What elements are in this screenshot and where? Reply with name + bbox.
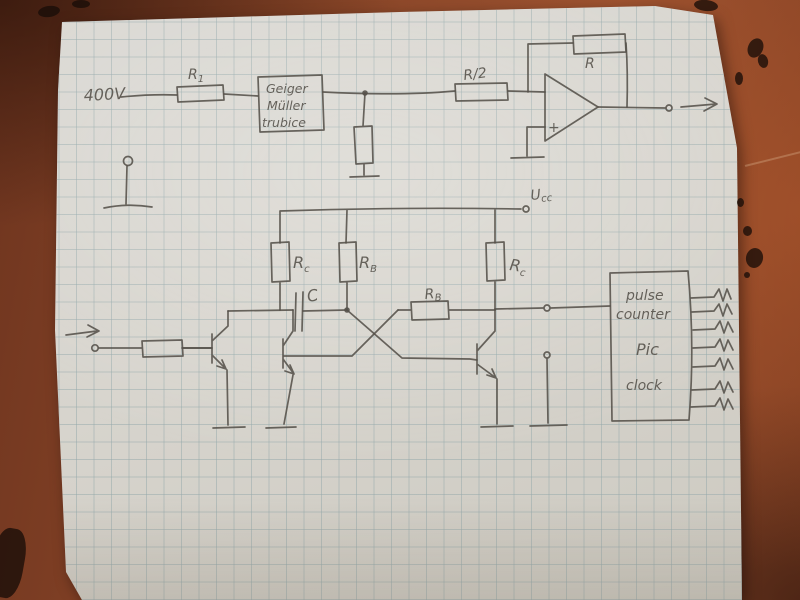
rb-mid-label: RB	[424, 286, 442, 305]
diagonal-to-left-base	[284, 310, 398, 356]
hv-wire	[121, 95, 177, 97]
wire	[303, 310, 347, 311]
resistor-r1-label: R1	[188, 67, 204, 85]
wire	[508, 91, 545, 92]
output-wire	[598, 107, 665, 108]
right-flipflop-transistor	[477, 310, 513, 427]
rc-right-label: Rc	[508, 255, 528, 279]
collector-resistor-left	[271, 242, 290, 310]
counter-pin	[693, 321, 733, 333]
counter-label-line2: counter	[616, 307, 671, 323]
vcc-rail	[280, 206, 529, 243]
transistor-body	[477, 310, 513, 427]
resistor-r1-body	[177, 85, 224, 102]
wire	[228, 310, 293, 311]
output-terminal-circle	[666, 105, 672, 111]
cross-coupling	[284, 301, 495, 360]
noninverting-ground	[511, 127, 545, 158]
counter-label-line4: clock	[626, 378, 663, 394]
rc-left-label: Rc	[293, 253, 310, 275]
ground-stem	[104, 166, 152, 208]
tube-output-net	[323, 90, 455, 177]
hv-input-section	[121, 85, 258, 102]
transistor-body	[182, 311, 245, 428]
counter-pin	[691, 289, 731, 301]
counter-pin	[691, 398, 733, 410]
pulldown-resistor	[350, 93, 379, 177]
resistor-r2-body	[455, 83, 508, 101]
base-resistor-mid-body	[398, 301, 495, 320]
wire	[323, 91, 455, 94]
wire	[224, 94, 258, 96]
reference-ground-symbol	[104, 157, 152, 209]
wire	[551, 306, 610, 308]
counter-pin	[693, 358, 733, 370]
terminal-circle	[124, 157, 133, 166]
ucc-label: Ucc	[530, 186, 554, 206]
divider-resistor-r2	[455, 83, 545, 101]
counter-label-line1: pulse	[625, 288, 664, 304]
circuit-schematic: 400V R1 Geiger Müller trubice R/2 R + Uc…	[0, 0, 800, 600]
input-resistor-body	[99, 340, 212, 357]
supply-voltage-label: 400V	[83, 84, 126, 105]
divider-resistor-label: R/2	[463, 65, 488, 84]
left-flipflop-transistor	[266, 310, 296, 428]
tube-box-label-line3: trubice	[262, 115, 306, 130]
opamp-plus-sign: +	[548, 120, 560, 136]
input-terminal-circle	[92, 345, 98, 351]
photo-of-desk: 400V R1 Geiger Müller trubice R/2 R + Uc…	[0, 0, 800, 600]
collector-resistor-right	[486, 242, 505, 310]
feedback-tap-wire	[528, 43, 573, 92]
ground-terminal-circle	[544, 352, 550, 358]
wire	[495, 308, 543, 309]
tube-box-label-line2: Müller	[267, 98, 306, 113]
coupling-capacitor	[228, 292, 350, 331]
input-transistor	[182, 311, 245, 428]
base-resistor-left	[339, 242, 357, 310]
flipflop-output-net	[495, 305, 610, 426]
feedback-return-wire	[626, 43, 627, 107]
counter-pin	[692, 304, 732, 316]
capacitor-label: C	[305, 285, 320, 306]
tube-box-label-line1: Geiger	[266, 81, 308, 96]
feedback-resistor-label: R	[585, 56, 595, 72]
counter-pin	[693, 339, 733, 351]
transistor-body	[266, 310, 296, 428]
output-arrow	[681, 98, 717, 111]
vcc-terminal-circle	[523, 206, 529, 212]
input-arrow	[66, 325, 99, 337]
capacitor-plates	[295, 292, 303, 331]
resistor-body	[339, 242, 357, 310]
opamp-stage	[511, 34, 717, 158]
feedback-resistor-body	[573, 34, 626, 54]
output-terminal-circle	[544, 305, 550, 311]
rb-left-label: RB	[359, 253, 377, 275]
rail-wire	[280, 208, 521, 243]
resistor-body	[271, 242, 290, 310]
pulse-input	[66, 325, 212, 357]
resistor-body	[486, 242, 505, 310]
counter-pin	[692, 381, 733, 393]
ground-leg	[530, 359, 567, 426]
counter-label-line3: Pic	[636, 340, 659, 359]
